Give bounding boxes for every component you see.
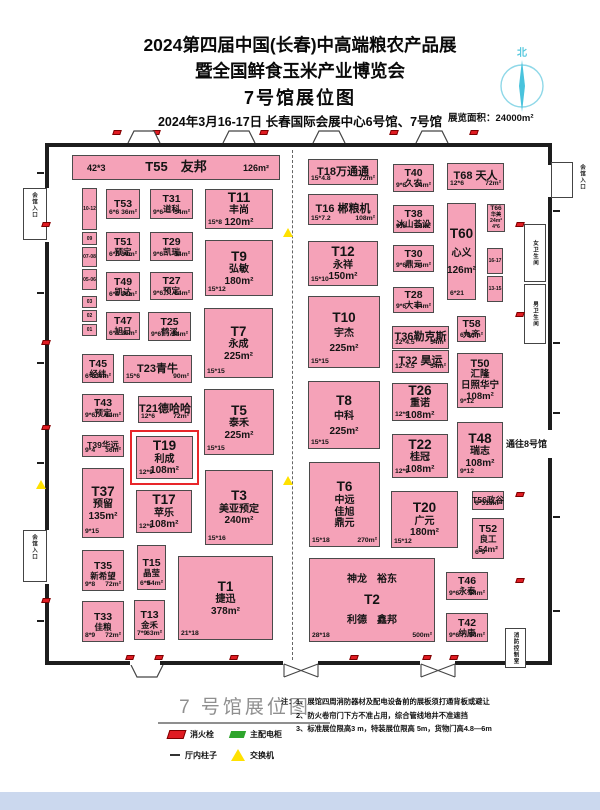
fire-hydrant-icon: [515, 312, 525, 317]
hall-column-icon: [37, 362, 44, 364]
booth-T31: T31道科9*654m²: [150, 189, 193, 219]
room-女卫生间: 女卫生间: [524, 224, 546, 282]
booth-T11: T11丰尚120m²15*8: [205, 189, 273, 229]
booth-T35: T35新希望9*872m²: [82, 550, 124, 591]
booth-cell-02: 02: [82, 310, 97, 322]
booth-T18: T18万通通15*4.872m²: [308, 159, 378, 185]
booth-T66: T66华美24m²4*6: [487, 204, 505, 232]
fire-hydrant-icon: [167, 730, 187, 739]
booth-T22: T22桂冠108m²12*9: [392, 434, 448, 478]
hall-column-icon: [37, 292, 44, 294]
fire-hydrant-icon: [125, 655, 135, 660]
loading-door-icon: [312, 130, 346, 148]
hall-column-icon: [553, 210, 560, 212]
fire-hydrant-icon: [515, 222, 525, 227]
booth-T29: T29凯瑞9*654m²: [150, 232, 193, 261]
booth-T45: T45经纬6*636m²: [82, 354, 114, 383]
fire-hydrant-icon: [349, 655, 359, 660]
hall-column-icon: [553, 516, 560, 518]
fire-hydrant-icon: [389, 130, 399, 135]
legend-item-column: 厅内柱子 交换机: [170, 749, 274, 761]
booth-T58: T58九齐6*636m²: [457, 316, 486, 342]
network-switch-icon: [36, 480, 46, 489]
hall-column-icon: [37, 462, 44, 464]
wall-top: [45, 143, 552, 147]
fire-hydrant-icon: [515, 492, 525, 497]
booth-T37: T37预留135m²9*15: [82, 468, 124, 538]
hall-column-icon: [37, 620, 44, 622]
fire-hydrant-icon: [112, 130, 122, 135]
loading-door-icon: [127, 130, 161, 148]
hall-column-icon: [553, 342, 560, 344]
booth-T33: T33佳粮8*972m²: [82, 601, 124, 642]
center-aisle-divider: [292, 150, 293, 660]
booth-T47: T47旭日6*636m²: [106, 312, 140, 340]
booth-cell-01: 01: [82, 324, 97, 336]
hall-column-icon: [170, 754, 180, 756]
booth-T55: T55 友邦42*3126m²: [72, 155, 280, 180]
wall-left: [45, 584, 49, 665]
double-swing-door-icon: [420, 663, 456, 683]
booth-T38: T38冰山荟设9*654m²: [393, 205, 434, 233]
booth-T46: T46永泰9*654m²: [446, 572, 488, 600]
booth-cell-05-06: 05-06: [82, 269, 97, 290]
legend-label: 交换机: [250, 750, 274, 761]
booth-T28: T28大丰9*654m²: [393, 287, 434, 313]
booth-cell-13-15: 13-15: [487, 276, 503, 302]
booth-T68: T68 天人12*672m²: [447, 163, 504, 190]
booth-T25: T25鹤溪9*654m²: [148, 312, 191, 341]
legend-label: 厅内柱子: [185, 750, 217, 761]
booth-cell-09: 09: [82, 232, 97, 245]
booth-cell-16-17: 16-17: [487, 248, 503, 274]
booth-T27: T27预定9*654m²: [150, 272, 193, 300]
hall-column-icon: [37, 172, 44, 174]
booth-T13: T13金禾7*963m²: [134, 600, 165, 640]
note-line: 2、防火卷帘门下方不准占用，综合管线地井不准遮挡: [296, 711, 496, 720]
booth-T8: T8中科225m²15*15: [308, 381, 380, 449]
booth-T9: T9弘敏180m²15*12: [205, 240, 273, 296]
fire-hydrant-icon: [41, 340, 51, 345]
booth-T49: T49凯达6*636m²: [106, 272, 140, 301]
booth-T43: T43预定9*654m²: [82, 394, 124, 422]
wall-right: [548, 458, 552, 665]
legend-label: 消火栓: [190, 729, 214, 740]
wall-bottom: [160, 661, 283, 665]
booth-T16: T16 郴粮机15*7.2108m²: [308, 194, 378, 225]
booth-cell-03: 03: [82, 296, 97, 308]
legend-label: 主配电柜: [250, 729, 282, 740]
notes-prefix: 注：: [281, 697, 296, 711]
loading-door-icon: [130, 665, 164, 683]
legend-item-fire-hydrant: 消火栓 主配电柜: [168, 729, 282, 740]
booth-T30: T30鼎元9*654m²: [393, 245, 434, 272]
wall-left: [45, 143, 49, 188]
wall-bottom: [45, 661, 130, 665]
bottom-band: [0, 792, 600, 810]
booth-T26: T26重诺108m²12*9: [392, 383, 448, 421]
exhibition-area-label: 展览面积：24000m²: [448, 110, 534, 124]
fire-hydrant-icon: [229, 655, 239, 660]
wall-bottom: [318, 661, 420, 665]
booth-T51: T51预定6*636m²: [106, 232, 140, 261]
booth-T60: T60心义126m²6*21: [447, 203, 476, 300]
wall-right: [548, 197, 552, 430]
room-男卫生间: 男卫生间: [524, 284, 546, 344]
booth-cell-10-12: 10-12: [82, 188, 97, 230]
entrance-label: 会馆入口: [30, 534, 38, 560]
hall-column-icon: [553, 610, 560, 612]
booth-T15: T15晶莹6*954m²: [137, 545, 166, 590]
booth-T56: T56政谷6*318m²: [472, 491, 504, 510]
exhibition-floorplan-page: 2024第四届中国(长春)中高端粮农产品展 暨全国鲜食玉米产业博览会 7号馆展位…: [0, 0, 600, 810]
passage-to-hall8-label: 通往8号馆: [506, 437, 547, 450]
fire-hydrant-icon: [449, 655, 459, 660]
booth-T6: T6中远佳旭鼎元15*18270m²: [309, 462, 380, 547]
plan-notes: 注： 1、展馆四周消防器材及配电设备前的展板须打通背板或避让 2、防火卷帘门下方…: [281, 697, 496, 738]
booth-T5: T5泰禾225m²15*15: [204, 389, 274, 455]
note-line: 3、标准展位限高3 m，特装展位限高 5m，货物门高4.8—6m: [296, 724, 496, 733]
entrance-label: 会馆入口: [578, 164, 586, 190]
network-switch-icon: [283, 228, 293, 237]
booth-T7: T7永成225m²15*15: [204, 308, 273, 378]
fire-hydrant-icon: [41, 222, 51, 227]
booth-T23: T23青牛15*690m²: [123, 355, 192, 383]
fire-hydrant-icon: [41, 598, 51, 603]
booth-T2: 神龙 裕东T2利德 鑫邦28*18500m²: [309, 558, 435, 642]
booth-T19: T19利成108m²12*9: [136, 436, 193, 479]
booth-T53: T536*636m²: [106, 189, 140, 219]
booth-T21: T21德哈哈12*672m²: [138, 396, 192, 423]
entrance-label: 会馆入口: [30, 192, 38, 218]
fire-hydrant-icon: [469, 130, 479, 135]
booth-T3: T3美亚预定240m²15*16: [205, 470, 273, 545]
fire-hydrant-icon: [41, 425, 51, 430]
room-消防控制室: 消防控制室: [505, 628, 526, 668]
main-power-cabinet-icon: [229, 731, 246, 738]
booth-T48: T48瑞志108m²9*12: [457, 422, 503, 478]
fire-hydrant-icon: [154, 655, 164, 660]
hall-column-icon: [553, 412, 560, 414]
loading-door-icon: [222, 130, 256, 148]
note-line: 1、展馆四周消防器材及配电设备前的展板须打通背板或避让: [296, 697, 496, 706]
booth-T20: T20广元180m²15*12: [391, 491, 458, 548]
network-switch-icon: [231, 749, 245, 761]
booth-T32: T32 昊运12*4.554m²: [392, 350, 449, 373]
booth-T10: T10宇杰225m²15*15: [308, 296, 380, 368]
booth-T17: T17苹乐108m²12*9: [136, 490, 192, 533]
loading-door-icon: [415, 130, 449, 148]
booth-T12: T12永祥150m²15*10: [308, 241, 378, 286]
wall-bottom: [455, 661, 552, 665]
booth-T50: T50汇隆日照华宁108m²9*12: [457, 353, 503, 408]
double-swing-door-icon: [283, 663, 319, 683]
fire-hydrant-icon: [515, 578, 525, 583]
booth-T40: T40久农9*654m²: [393, 164, 434, 192]
fire-hydrant-icon: [422, 655, 432, 660]
booth-T52: T52良工54m²6*9: [472, 518, 504, 559]
booth-T39: T39华远9*436m²: [82, 435, 124, 457]
door-box-right-top: [551, 162, 573, 198]
network-switch-icon: [283, 476, 293, 485]
booth-T36: T36勒克斯12*4.554m²: [392, 326, 449, 349]
fire-hydrant-icon: [259, 130, 269, 135]
booth-T42: T42纳康9*654m²: [446, 613, 488, 642]
compass-north-label: 北: [494, 44, 550, 59]
booth-T1: T1捷迅378m²21*18: [178, 556, 273, 640]
booth-cell-07-08: 07-08: [82, 247, 97, 267]
